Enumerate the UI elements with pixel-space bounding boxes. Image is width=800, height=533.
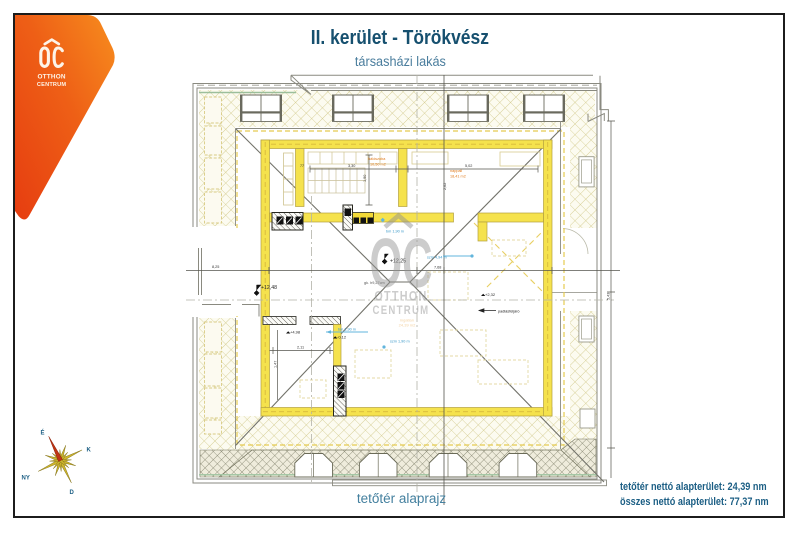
svg-text:É: É bbox=[41, 429, 45, 437]
svg-text:5,43: 5,43 bbox=[607, 293, 611, 300]
svg-text:3,30: 3,30 bbox=[348, 164, 355, 168]
svg-text:K: K bbox=[87, 448, 92, 454]
svg-text:padlásfeljáró: padlásfeljáró bbox=[498, 310, 520, 314]
svg-text:8,25: 8,25 bbox=[212, 265, 219, 269]
svg-text:18,41 m2: 18,41 m2 bbox=[450, 175, 466, 179]
svg-text:nappali: nappali bbox=[450, 169, 462, 173]
svg-text:24,39 m2: 24,39 m2 bbox=[399, 323, 416, 328]
svg-text:OTTHON: OTTHON bbox=[38, 74, 66, 81]
svg-text:+2,32: +2,32 bbox=[485, 292, 496, 297]
svg-text:NY: NY bbox=[22, 476, 30, 482]
svg-text:CENTRUM: CENTRUM bbox=[373, 304, 430, 317]
svg-text:10,50 m2: 10,50 m2 bbox=[370, 163, 386, 167]
svg-text:OTTHON: OTTHON bbox=[374, 288, 427, 303]
svg-text:+4,98: +4,98 bbox=[290, 330, 301, 335]
svg-text:hálószoba: hálószoba bbox=[368, 157, 386, 161]
svg-text:7,68: 7,68 bbox=[434, 266, 441, 270]
svg-text:szm 1,90 m: szm 1,90 m bbox=[390, 340, 410, 344]
svg-text:1,47: 1,47 bbox=[274, 361, 278, 368]
svg-text:bm 1,90 m: bm 1,90 m bbox=[338, 328, 356, 332]
svg-text:+12,48: +12,48 bbox=[261, 285, 277, 291]
svg-text:-0,12: -0,12 bbox=[337, 335, 347, 340]
svg-text:1,90: 1,90 bbox=[363, 175, 367, 182]
svg-text:2,11: 2,11 bbox=[297, 346, 304, 350]
svg-text:5,02: 5,02 bbox=[465, 164, 472, 168]
svg-text:77: 77 bbox=[300, 164, 304, 168]
svg-text:2,62: 2,62 bbox=[443, 183, 447, 190]
svg-text:CENTRUM: CENTRUM bbox=[37, 82, 67, 88]
